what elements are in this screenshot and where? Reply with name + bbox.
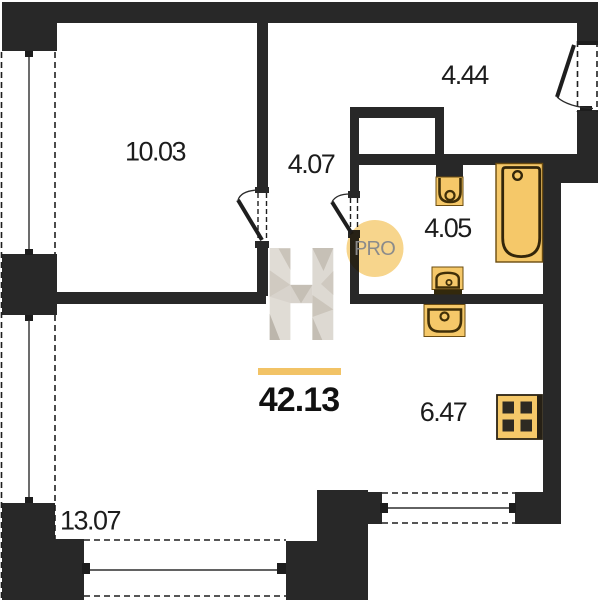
svg-text:4.05: 4.05 — [424, 213, 471, 243]
svg-text:4.44: 4.44 — [441, 60, 489, 90]
svg-text:PRO: PRO — [354, 238, 395, 260]
svg-text:42.13: 42.13 — [259, 381, 340, 419]
svg-text:6.47: 6.47 — [420, 397, 467, 427]
svg-text:4.07: 4.07 — [288, 149, 335, 179]
svg-text:10.03: 10.03 — [125, 137, 186, 167]
svg-text:13.07: 13.07 — [60, 506, 121, 536]
